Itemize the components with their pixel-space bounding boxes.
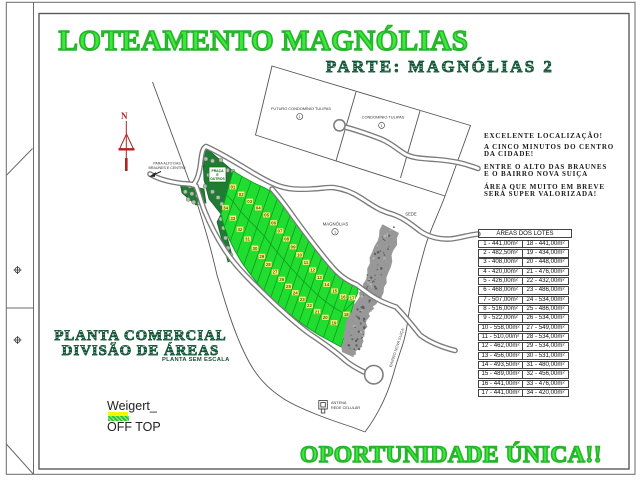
svg-text:31: 31 xyxy=(245,237,250,242)
svg-text:10: 10 xyxy=(297,252,302,257)
svg-text:17: 17 xyxy=(350,296,355,301)
svg-text:06: 06 xyxy=(271,220,276,225)
svg-text:13: 13 xyxy=(317,275,322,280)
svg-text:18: 18 xyxy=(344,312,349,317)
svg-text:15: 15 xyxy=(332,289,337,294)
svg-text:26: 26 xyxy=(279,277,284,282)
svg-text:11: 11 xyxy=(304,260,309,265)
svg-text:1: 1 xyxy=(334,231,336,235)
svg-text:ANTENA: ANTENA xyxy=(331,401,347,405)
svg-text:FUTURO CONDOMÍNIO TULIPAS: FUTURO CONDOMÍNIO TULIPAS xyxy=(271,106,331,111)
svg-text:1: 1 xyxy=(299,115,301,119)
svg-text:14: 14 xyxy=(324,282,329,287)
svg-text:SEDE: SEDE xyxy=(405,212,417,217)
svg-text:MAGNÓLIAS: MAGNÓLIAS xyxy=(323,222,349,227)
svg-text:BRAUNES E CENTRO: BRAUNES E CENTRO xyxy=(149,166,186,170)
svg-text:25: 25 xyxy=(286,284,291,289)
svg-text:REDE CELULAR: REDE CELULAR xyxy=(331,406,360,410)
svg-text:33: 33 xyxy=(230,216,235,221)
svg-text:01: 01 xyxy=(230,185,235,190)
svg-text:27: 27 xyxy=(273,270,278,275)
svg-text:28: 28 xyxy=(266,262,271,267)
svg-text:19: 19 xyxy=(332,320,337,325)
svg-text:32: 32 xyxy=(237,227,242,232)
svg-text:12: 12 xyxy=(310,268,315,273)
svg-text:16: 16 xyxy=(341,295,346,300)
svg-text:05: 05 xyxy=(264,213,269,218)
svg-text:02: 02 xyxy=(239,192,244,197)
svg-text:PARA ALTO DAS: PARA ALTO DAS xyxy=(153,162,181,166)
svg-text:09: 09 xyxy=(291,245,296,250)
svg-text:OUTROS: OUTROS xyxy=(210,177,225,181)
svg-text:21: 21 xyxy=(315,309,320,314)
svg-text:N: N xyxy=(121,111,128,121)
svg-text:1: 1 xyxy=(381,124,383,128)
svg-text:24: 24 xyxy=(293,290,298,295)
svg-text:08: 08 xyxy=(284,237,289,242)
svg-text:30: 30 xyxy=(253,246,258,251)
svg-text:20: 20 xyxy=(323,315,328,320)
svg-text:CONDOMÍNIO TULIPAS: CONDOMÍNIO TULIPAS xyxy=(362,115,405,120)
svg-text:29: 29 xyxy=(259,254,264,259)
svg-text:03: 03 xyxy=(247,199,252,204)
svg-text:04: 04 xyxy=(256,206,261,211)
svg-text:34: 34 xyxy=(223,205,228,210)
svg-text:07: 07 xyxy=(278,229,283,234)
svg-text:22: 22 xyxy=(307,303,312,308)
svg-text:23: 23 xyxy=(300,297,305,302)
